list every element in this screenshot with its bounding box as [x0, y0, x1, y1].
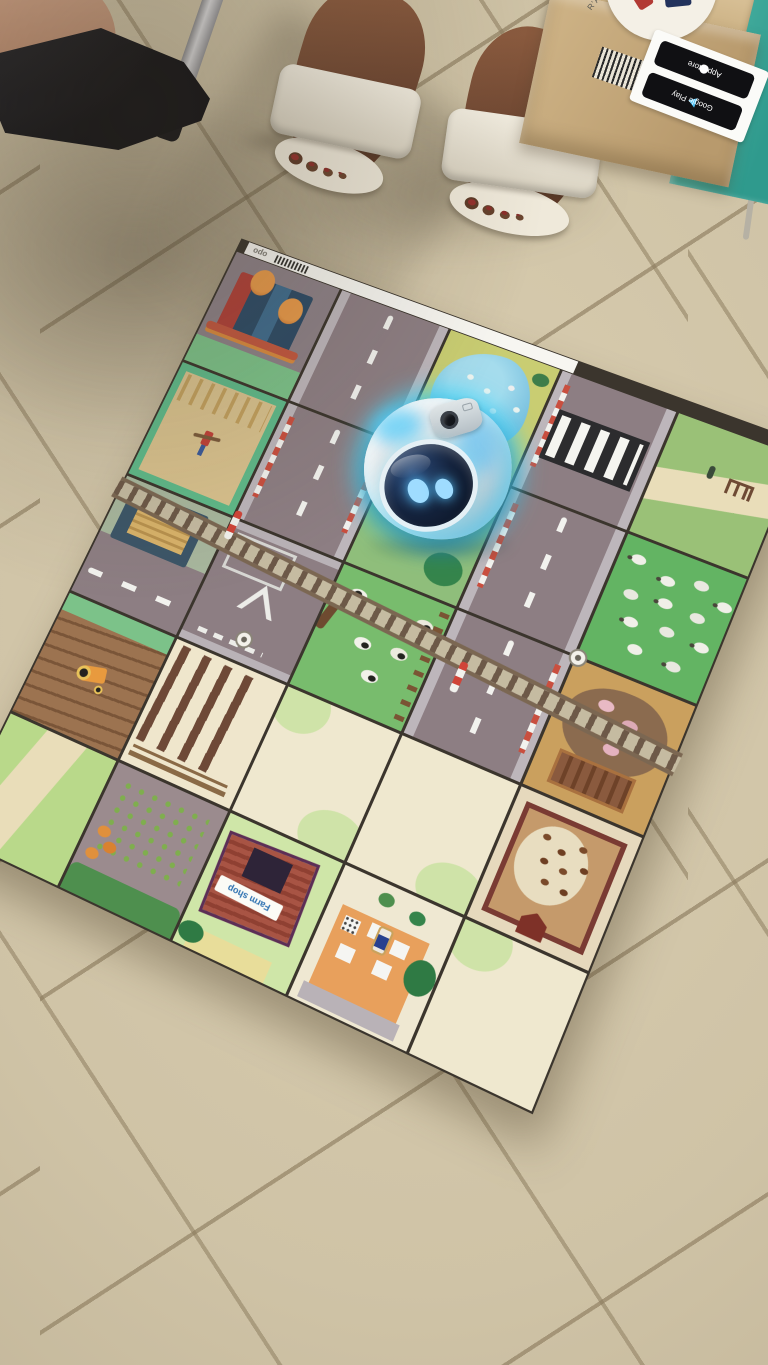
- sheep: [630, 552, 648, 567]
- app-store-badge-text: App Store: [686, 59, 722, 80]
- bush: [530, 371, 552, 389]
- road-dashes: [517, 516, 568, 624]
- logo-shape: [629, 0, 654, 11]
- road-dashes: [289, 429, 341, 532]
- google-play-badge-text: Google Play: [670, 89, 714, 113]
- screen-highlight: [388, 450, 433, 482]
- photo-scene: R'AÑE App Store Google Play opo: [0, 0, 768, 1365]
- mat-logo-text: opo: [251, 246, 269, 259]
- robot-eye: [431, 476, 456, 503]
- robot-top-slot: [462, 402, 474, 411]
- zebra-crossing: [538, 409, 650, 492]
- brand-arc-text: R'AÑE: [586, 0, 639, 14]
- robot-eye: [404, 476, 433, 507]
- floor-robot: [356, 390, 520, 548]
- road-dashes: [88, 567, 182, 611]
- camera-lens-icon: [438, 409, 460, 431]
- logo-shape: [664, 0, 692, 8]
- tree: [376, 890, 397, 910]
